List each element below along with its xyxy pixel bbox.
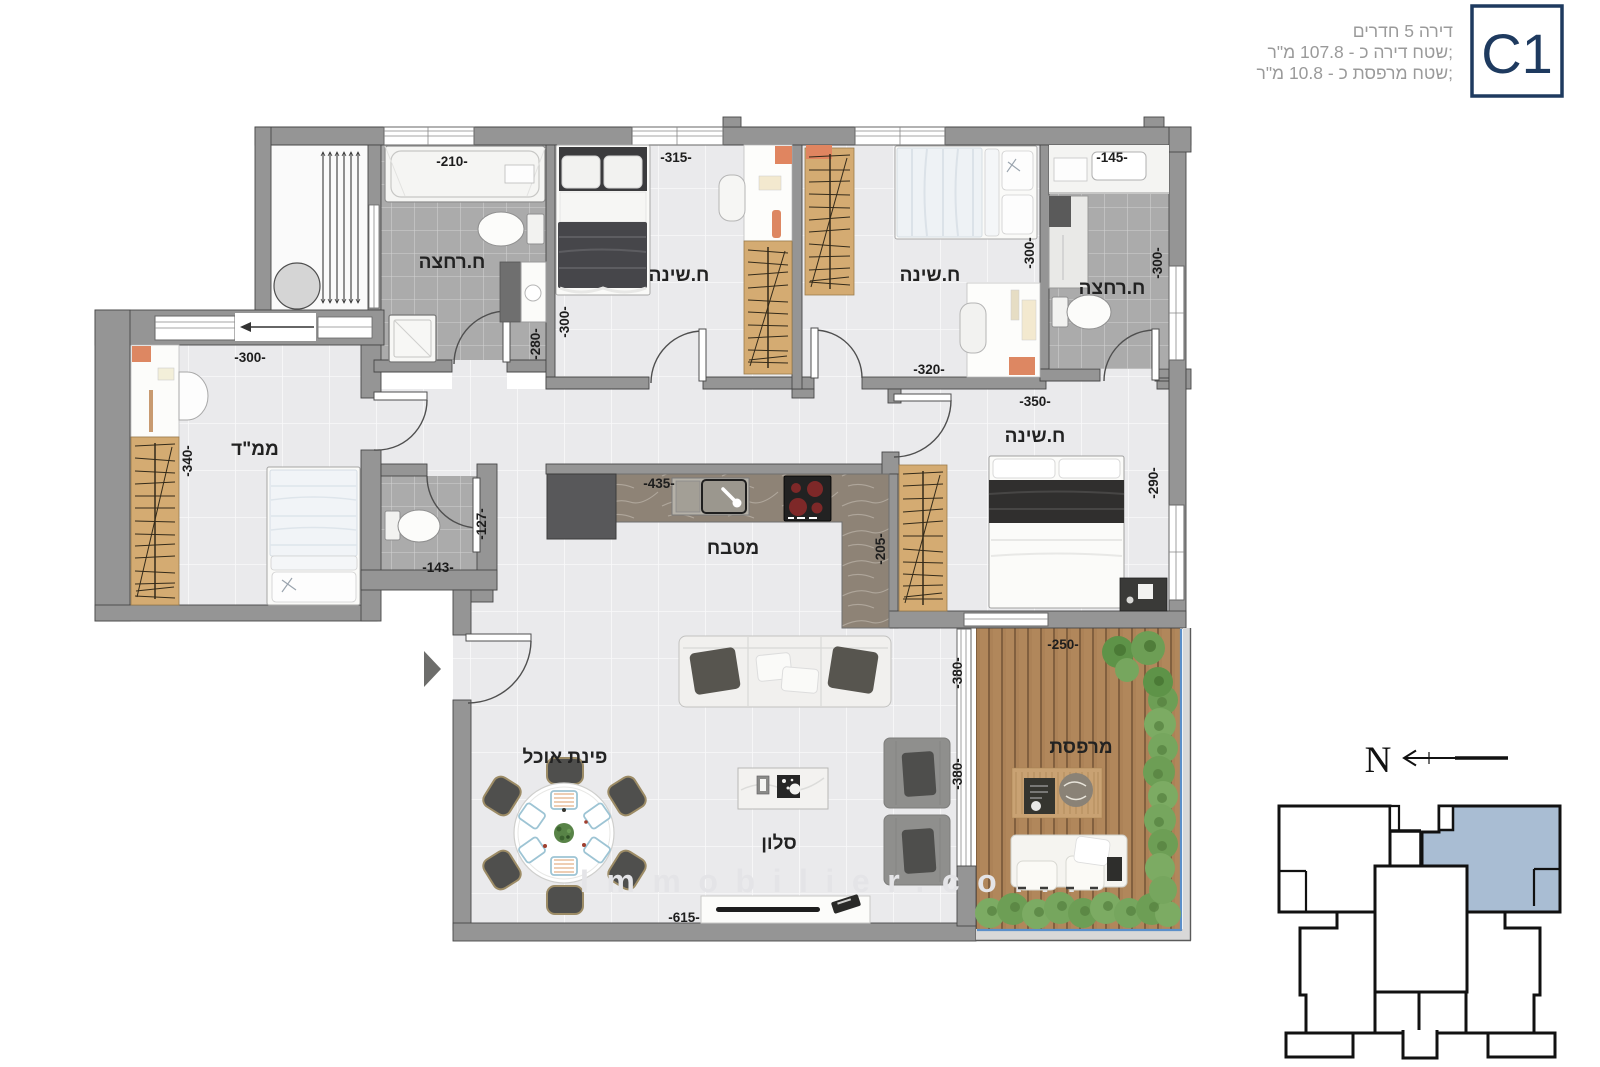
svg-text:מרפסת: מרפסת <box>1049 737 1112 758</box>
svg-text:-380-: -380- <box>950 758 965 790</box>
svg-text:-315-: -315- <box>660 150 692 165</box>
svg-text:ח.שינה: ח.שינה <box>900 265 961 286</box>
svg-text:ח.שינה: ח.שינה <box>1005 426 1066 447</box>
svg-text:שטח מרפסת כ - 10.8 מ"ר;: שטח מרפסת כ - 10.8 מ"ר; <box>1257 63 1454 83</box>
svg-text:-210-: -210- <box>436 154 468 169</box>
svg-text:-300-: -300- <box>234 350 266 365</box>
svg-text:C1: C1 <box>1481 22 1553 85</box>
svg-text:-250-: -250- <box>1047 637 1079 652</box>
svg-text:-300-: -300- <box>1150 247 1165 279</box>
svg-text:-615-: -615- <box>668 910 700 925</box>
svg-text:ח.שינה: ח.שינה <box>649 265 710 286</box>
svg-text:פינת אוכל: פינת אוכל <box>523 747 608 768</box>
svg-text:N: N <box>1365 740 1392 781</box>
svg-text:-127-: -127- <box>474 508 489 540</box>
svg-text:שטח דירה כ - 107.8 מ"ר;: שטח דירה כ - 107.8 מ"ר; <box>1268 42 1453 62</box>
svg-text:-340-: -340- <box>180 445 195 477</box>
svg-text:ח.רחצה: ח.רחצה <box>419 252 486 273</box>
svg-text:-300-: -300- <box>1022 237 1037 269</box>
svg-text:-320-: -320- <box>913 362 945 377</box>
svg-text:ממ"ד: ממ"ד <box>231 439 279 460</box>
svg-text:מטבח: מטבח <box>707 538 759 559</box>
svg-text:-205-: -205- <box>873 533 888 565</box>
svg-text:סלון: סלון <box>761 833 797 854</box>
svg-text:דירה 5 חדרים: דירה 5 חדרים <box>1353 21 1454 41</box>
svg-text:-300-: -300- <box>557 306 572 338</box>
svg-text:-280-: -280- <box>528 328 543 360</box>
svg-text:ח.רחצה: ח.רחצה <box>1079 278 1146 299</box>
svg-text:-290-: -290- <box>1146 467 1161 499</box>
svg-text:-145-: -145- <box>1096 150 1128 165</box>
svg-text:-350-: -350- <box>1019 394 1051 409</box>
svg-text:-143-: -143- <box>422 560 454 575</box>
svg-text:-380-: -380- <box>950 657 965 689</box>
svg-text:-435-: -435- <box>643 476 675 491</box>
